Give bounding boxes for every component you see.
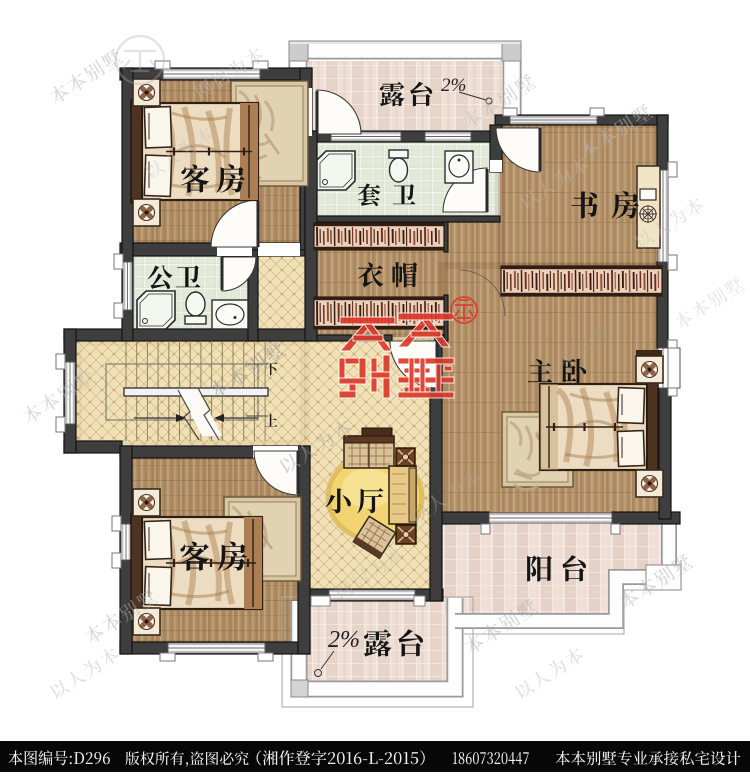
svg-text:2%: 2%: [328, 627, 360, 653]
